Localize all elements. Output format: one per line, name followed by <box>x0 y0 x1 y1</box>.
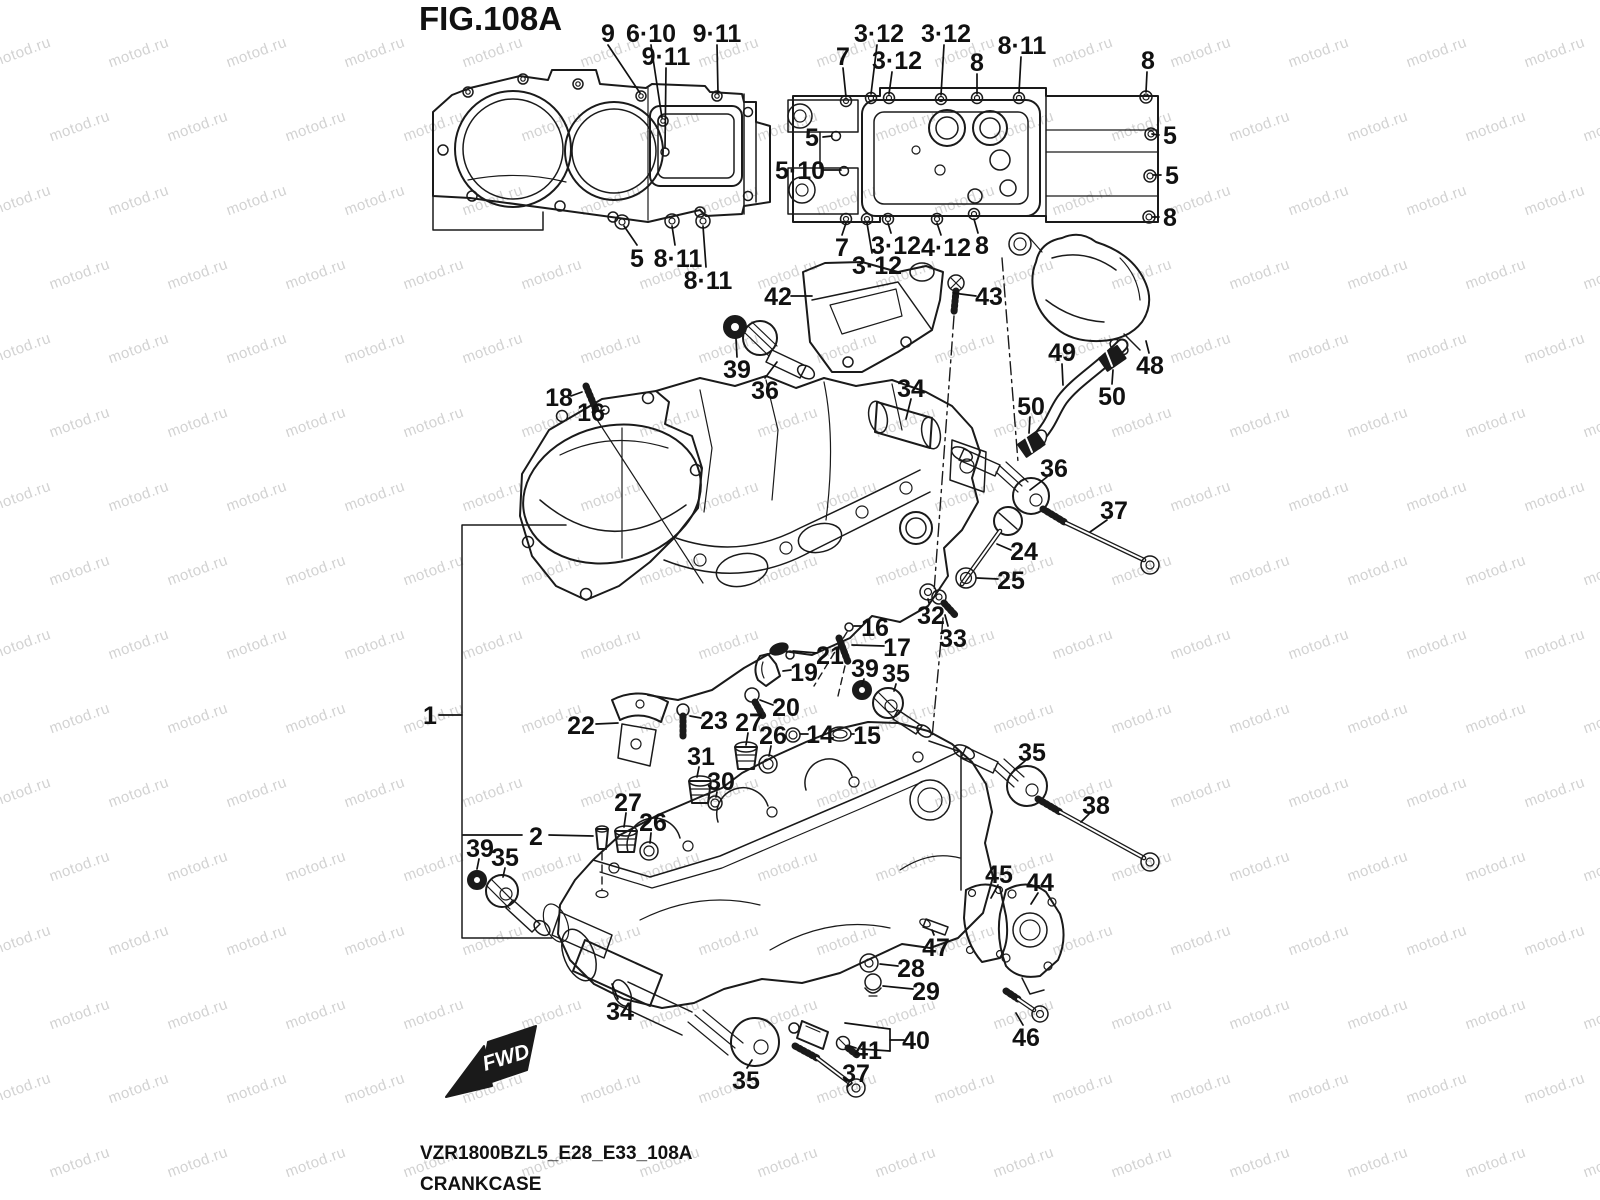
screw-23 <box>677 704 689 736</box>
callout-31: 31 <box>687 743 715 771</box>
dowel-16b <box>845 623 853 631</box>
oring-26-lower <box>640 842 658 860</box>
callout-48: 48 <box>1136 352 1164 380</box>
callout-45: 45 <box>985 861 1013 889</box>
callout-3·12: 3·12 <box>921 20 971 48</box>
callout-8: 8 <box>1163 204 1177 232</box>
callout-36: 36 <box>751 377 779 405</box>
callout-23: 23 <box>700 707 728 735</box>
callout-8·11: 8·11 <box>998 32 1047 60</box>
lower-edge-bolts <box>615 214 710 229</box>
footer-part-code: VZR1800BZL5_E28_E33_108A <box>420 1143 693 1165</box>
callout-47: 47 <box>922 934 950 962</box>
callout-3·12: 3·12 <box>872 47 922 75</box>
bearing-retainer-22 <box>612 693 668 766</box>
callout-25: 25 <box>997 567 1025 595</box>
plug-29 <box>865 974 881 996</box>
speed-sensor-35-mid <box>873 688 933 740</box>
leader-line-28 <box>880 964 898 966</box>
callout-33: 33 <box>939 625 967 653</box>
callout-36: 36 <box>1040 455 1068 483</box>
callout-29: 29 <box>912 978 940 1006</box>
callout-5: 5 <box>1163 122 1177 150</box>
leader-line-17 <box>852 645 884 646</box>
secondary-cover-44 <box>999 884 1064 994</box>
leader-line-5 <box>1152 134 1159 135</box>
callout-37: 37 <box>842 1060 870 1088</box>
crankcase-exploded-diagram: FWD 96·109·119·115·1058·118·1173·123·123… <box>0 0 1600 1200</box>
callout-24: 24 <box>1010 538 1038 566</box>
leader-line-24 <box>997 544 1011 550</box>
callout-15: 15 <box>853 722 881 750</box>
leader-line-20 <box>760 700 773 705</box>
callout-44: 44 <box>1026 869 1054 897</box>
footer-part-name: CRANKCASE <box>420 1174 541 1196</box>
leader-line-49 <box>1062 364 1063 385</box>
callout-35: 35 <box>732 1067 760 1095</box>
callout-40: 40 <box>902 1027 930 1055</box>
breather-chamber <box>1009 233 1149 358</box>
callout-9: 9 <box>601 20 615 48</box>
callout-5: 5 <box>1165 162 1179 190</box>
leader-line-40 <box>845 1023 890 1029</box>
parts-diagram-page: motod.rumotod.rumotod.rumotod.rumotod.ru… <box>0 0 1600 1200</box>
lower-crankcase-bottom-view <box>788 88 1158 225</box>
callout-50: 50 <box>1017 393 1045 421</box>
callout-35: 35 <box>1018 739 1046 767</box>
callout-49: 49 <box>1048 339 1076 367</box>
callout-5: 5 <box>630 245 644 273</box>
breather-pipe-19 <box>755 654 780 686</box>
leader-line-5 <box>624 226 637 245</box>
gear-sensor-35-bottom <box>609 977 779 1066</box>
callout-39: 39 <box>851 655 879 683</box>
washer-21 <box>769 641 794 659</box>
callout-8: 8 <box>975 232 989 260</box>
figure-title: FIG.108A <box>419 0 562 38</box>
oring-14 <box>786 728 800 742</box>
leader-line-7 <box>843 68 846 97</box>
plug-27-lower <box>615 826 637 852</box>
callout-18: 18 <box>545 384 573 412</box>
callout-14: 14 <box>806 721 834 749</box>
callout-27: 27 <box>614 789 642 817</box>
callout-7: 7 <box>836 43 850 71</box>
callout-1: 1 <box>423 702 437 730</box>
leader-line-9·11 <box>665 68 666 148</box>
gear-sensor-36-right <box>949 444 1049 514</box>
callout-9·11: 9·11 <box>693 20 742 48</box>
leader-line-8 <box>974 219 978 233</box>
callout-9·11: 9·11 <box>642 43 691 71</box>
callout-7: 7 <box>835 234 849 262</box>
callout-26: 26 <box>759 722 787 750</box>
cylinder-sleeve-34-upper <box>866 399 943 450</box>
plug-27-upper <box>735 742 757 769</box>
leader-line-8 <box>1146 72 1147 92</box>
callout-labels: 96·109·119·115·1058·118·1173·123·123·128… <box>423 20 1179 1095</box>
callout-19: 19 <box>790 659 818 687</box>
callout-17: 17 <box>883 634 911 662</box>
leader-line-22 <box>596 723 618 724</box>
callout-30: 30 <box>707 768 735 796</box>
leader-line-2 <box>549 835 593 836</box>
bolt-46 <box>1006 991 1048 1022</box>
callout-39: 39 <box>723 356 751 384</box>
callout-21: 21 <box>816 642 844 670</box>
leader-line-3·12 <box>889 72 892 94</box>
upper-crankcase-top-view <box>433 70 770 230</box>
cylinder-sleeve-34-lower <box>538 900 662 1006</box>
callout-3·12: 3·12 <box>854 20 904 48</box>
callout-35: 35 <box>882 660 910 688</box>
leader-line-50 <box>1112 370 1113 384</box>
callout-46: 46 <box>1012 1024 1040 1052</box>
leader-line-8·11 <box>703 226 706 267</box>
leader-line-39 <box>736 339 737 357</box>
oring-26-upper <box>759 755 777 773</box>
callout-43: 43 <box>975 283 1003 311</box>
callout-16: 16 <box>577 399 605 427</box>
callout-37: 37 <box>1100 497 1128 525</box>
callout-34: 34 <box>606 998 634 1026</box>
callout-26: 26 <box>639 809 667 837</box>
callout-50: 50 <box>1098 383 1126 411</box>
leader-line-29 <box>883 986 913 989</box>
callout-8: 8 <box>970 49 984 77</box>
leader-line-25 <box>977 578 998 579</box>
callout-38: 38 <box>1082 792 1110 820</box>
callout-35: 35 <box>491 844 519 872</box>
fwd-arrow: FWD <box>446 1026 536 1097</box>
leader-line-5 <box>823 136 832 137</box>
callout-2: 2 <box>529 823 543 851</box>
callout-5: 5 <box>805 124 819 152</box>
leader-line-8·11 <box>672 226 675 245</box>
callout-4·12: 4·12 <box>921 234 971 262</box>
leader-line-9·11 <box>717 45 718 93</box>
callout-42: 42 <box>764 283 792 311</box>
callout-8·11: 8·11 <box>684 267 733 295</box>
callout-22: 22 <box>567 712 595 740</box>
callout-5·10: 5·10 <box>775 157 825 185</box>
callout-34: 34 <box>897 375 925 403</box>
callout-8: 8 <box>1141 47 1155 75</box>
callout-20: 20 <box>772 694 800 722</box>
speed-sensor-35-bottom-left <box>468 871 553 938</box>
callout-3·12: 3·12 <box>852 252 902 280</box>
callout-39: 39 <box>466 835 494 863</box>
